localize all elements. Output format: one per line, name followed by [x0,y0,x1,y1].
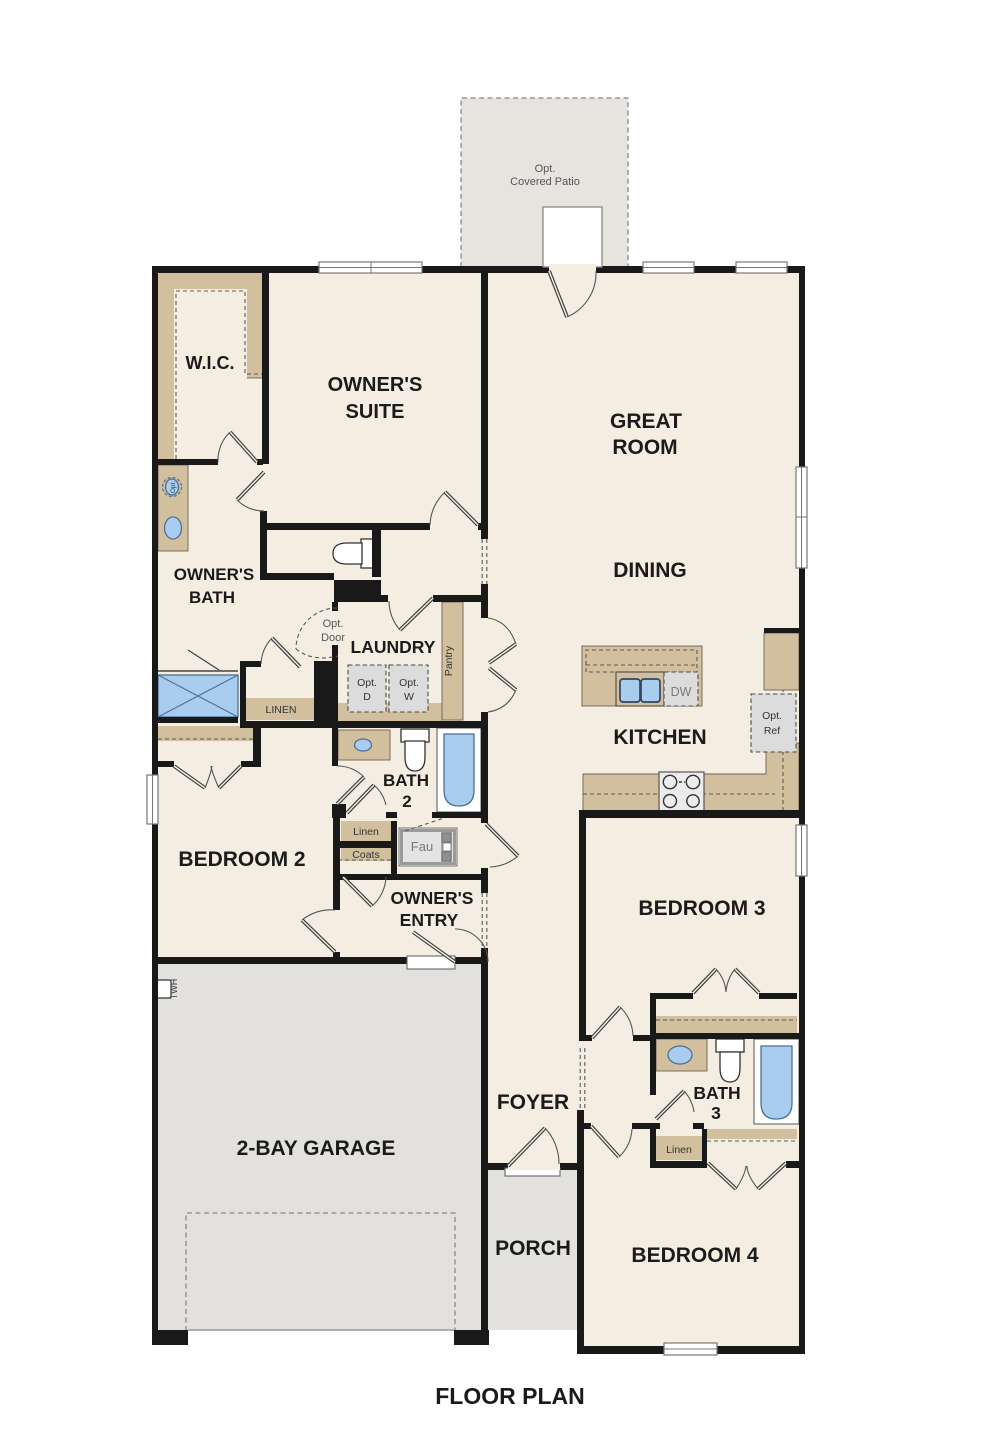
svg-text:Linen: Linen [353,826,379,838]
svg-text:3: 3 [711,1103,721,1123]
svg-text:OWNER'S: OWNER'S [174,565,255,584]
svg-text:DINING: DINING [613,559,687,582]
svg-text:PORCH: PORCH [495,1237,571,1260]
svg-text:ROOM: ROOM [612,436,677,459]
svg-text:BEDROOM 3: BEDROOM 3 [638,897,765,920]
svg-text:GREAT: GREAT [610,410,682,433]
svg-text:Opt.: Opt. [323,618,344,630]
svg-text:Covered Patio: Covered Patio [510,176,580,188]
svg-text:BATH: BATH [189,588,235,607]
svg-text:LAUNDRY: LAUNDRY [351,637,436,657]
svg-text:SUITE: SUITE [346,401,405,423]
svg-text:KITCHEN: KITCHEN [613,726,706,749]
svg-text:TWH: TWH [169,979,179,1000]
svg-text:Fau: Fau [411,839,433,854]
svg-text:W: W [404,691,414,703]
svg-text:Opt.: Opt. [762,710,782,722]
svg-text:LINEN: LINEN [266,704,297,716]
svg-text:BEDROOM 4: BEDROOM 4 [631,1244,759,1267]
svg-text:BEDROOM 2: BEDROOM 2 [178,848,305,871]
svg-text:Coats: Coats [352,849,379,861]
svg-text:Door: Door [321,632,345,644]
svg-text:DW: DW [671,685,692,699]
svg-text:OWNER'S: OWNER'S [328,374,423,396]
svg-text:2: 2 [402,792,411,811]
svg-text:ENTRY: ENTRY [400,910,459,930]
svg-text:FOYER: FOYER [497,1091,569,1114]
svg-text:2-BAY GARAGE: 2-BAY GARAGE [237,1137,396,1160]
svg-text:Opt.: Opt. [170,481,177,493]
svg-text:FLOOR PLAN: FLOOR PLAN [435,1383,585,1409]
svg-text:Opt.: Opt. [535,163,556,175]
svg-text:Pantry: Pantry [443,645,455,676]
svg-text:Linen: Linen [666,1144,692,1156]
svg-text:Opt.: Opt. [399,677,419,689]
svg-text:Opt.: Opt. [357,677,377,689]
svg-text:OWNER'S: OWNER'S [391,888,474,908]
svg-text:BATH: BATH [693,1083,740,1103]
svg-text:W.I.C.: W.I.C. [186,353,235,373]
svg-text:BATH: BATH [383,771,429,790]
svg-text:D: D [363,691,371,703]
svg-text:Ref: Ref [764,725,780,737]
